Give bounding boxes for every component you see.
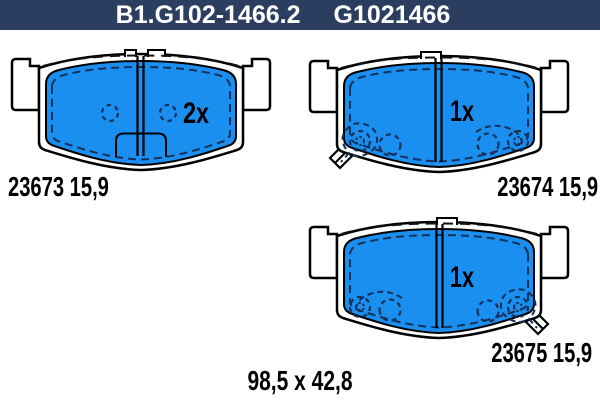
quantity-label: 1x xyxy=(450,95,474,128)
pad-front-geometry xyxy=(310,52,568,172)
pad-front-geometry-mirrored xyxy=(310,218,568,338)
header-bar: B1.G102-1466.2 G1021466 xyxy=(0,0,600,30)
right-ear xyxy=(243,59,270,110)
left-ear xyxy=(12,59,39,110)
quantity-label: 2x xyxy=(183,97,209,130)
brake-pad-front-view-upper: 1x xyxy=(306,50,572,180)
pad-id-label: 23673 15,9 xyxy=(8,173,109,201)
pad-id-label: 23675 15,9 xyxy=(491,339,592,367)
quantity-label: 1x xyxy=(450,261,474,294)
reference-number: G1021466 xyxy=(334,1,451,30)
pad-id-label: 23674 15,9 xyxy=(497,173,598,201)
brake-pad-front-view-lower: 1x xyxy=(306,216,572,346)
part-number: B1.G102-1466.2 xyxy=(116,1,301,30)
brake-pad-back-view: 2x xyxy=(8,48,274,178)
brake-pad-diagram-page: B1.G102-1466.2 G1021466 2x xyxy=(0,0,600,400)
dimensions-label: 98,5 x 42,8 xyxy=(75,367,525,395)
